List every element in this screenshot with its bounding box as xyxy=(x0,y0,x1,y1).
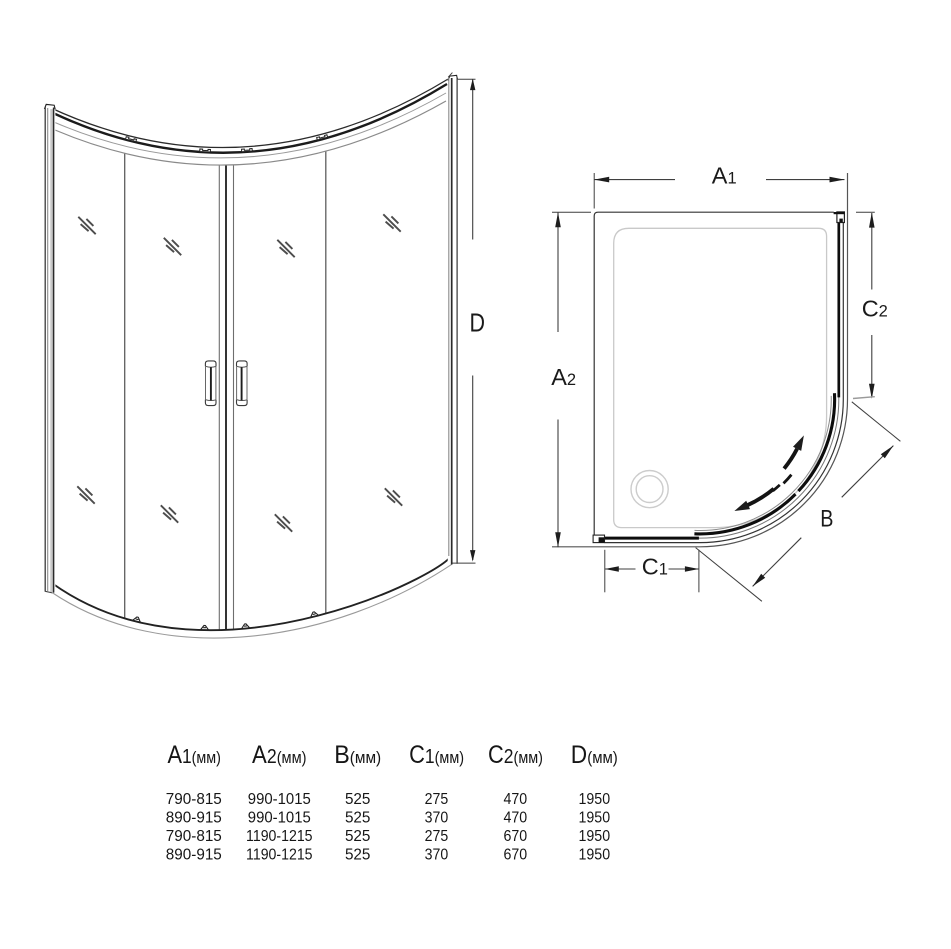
svg-text:670: 670 xyxy=(503,847,527,864)
svg-text:990-1015: 990-1015 xyxy=(248,810,311,827)
svg-text:1950: 1950 xyxy=(579,828,611,845)
svg-text:1950: 1950 xyxy=(579,847,611,864)
svg-text:470: 470 xyxy=(503,791,527,808)
svg-text:790-815: 790-815 xyxy=(166,828,222,845)
svg-text:525: 525 xyxy=(345,791,371,808)
svg-text:370: 370 xyxy=(425,847,449,864)
svg-text:1950: 1950 xyxy=(579,791,611,808)
svg-text:470: 470 xyxy=(503,810,527,827)
svg-text:890-915: 890-915 xyxy=(166,810,222,827)
svg-text:790-815: 790-815 xyxy=(166,791,222,808)
svg-text:275: 275 xyxy=(425,828,449,845)
svg-text:1950: 1950 xyxy=(579,810,611,827)
svg-text:1190-1215: 1190-1215 xyxy=(246,828,313,845)
svg-text:670: 670 xyxy=(503,828,527,845)
svg-text:990-1015: 990-1015 xyxy=(248,791,311,808)
svg-text:525: 525 xyxy=(345,847,371,864)
svg-text:525: 525 xyxy=(345,828,371,845)
svg-text:525: 525 xyxy=(345,810,371,827)
svg-text:1190-1215: 1190-1215 xyxy=(246,847,313,864)
svg-text:B: B xyxy=(820,505,833,532)
svg-text:890-915: 890-915 xyxy=(166,847,222,864)
svg-text:275: 275 xyxy=(425,791,449,808)
svg-text:D: D xyxy=(470,308,486,338)
svg-text:370: 370 xyxy=(425,810,449,827)
